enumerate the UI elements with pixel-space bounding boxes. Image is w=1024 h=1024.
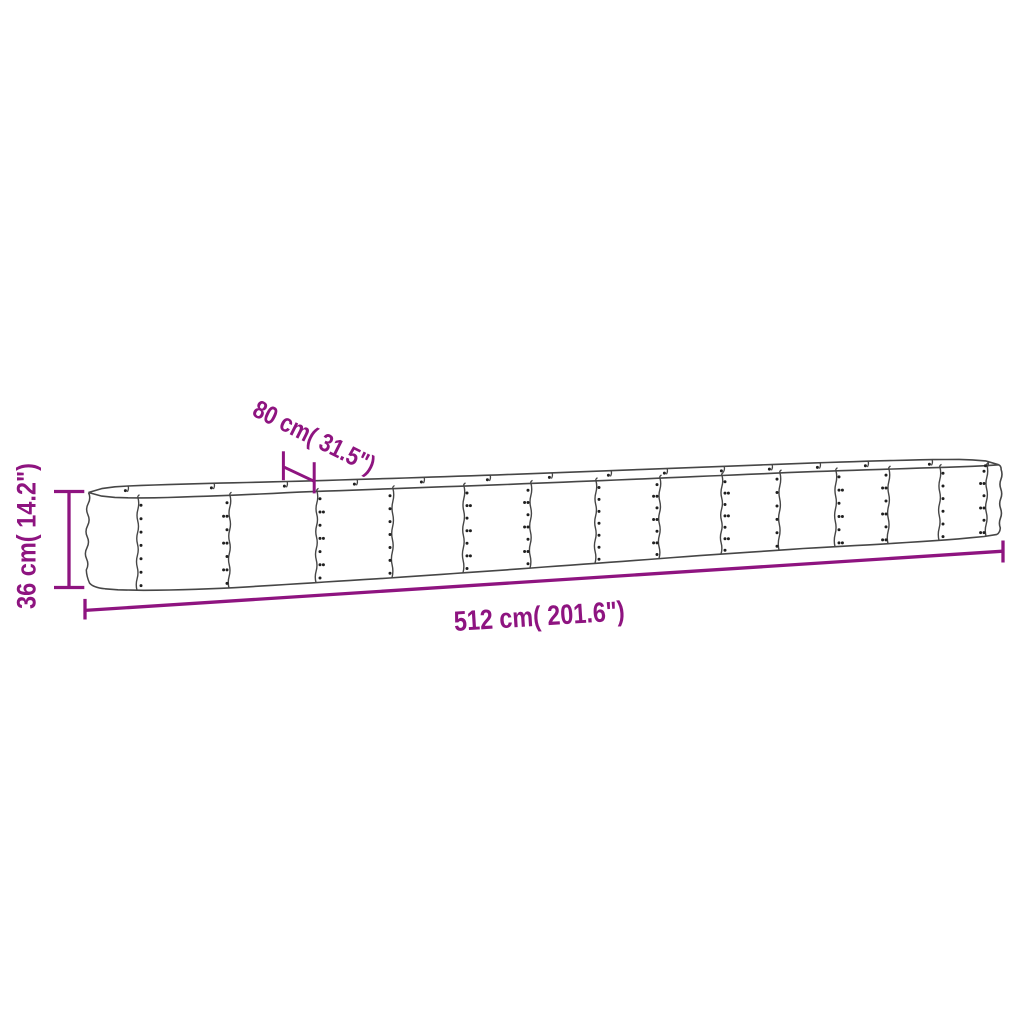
svg-text:36 cm( 14.2"): 36 cm( 14.2") [12,463,42,609]
svg-text:512 cm( 201.6"): 512 cm( 201.6") [453,595,626,637]
